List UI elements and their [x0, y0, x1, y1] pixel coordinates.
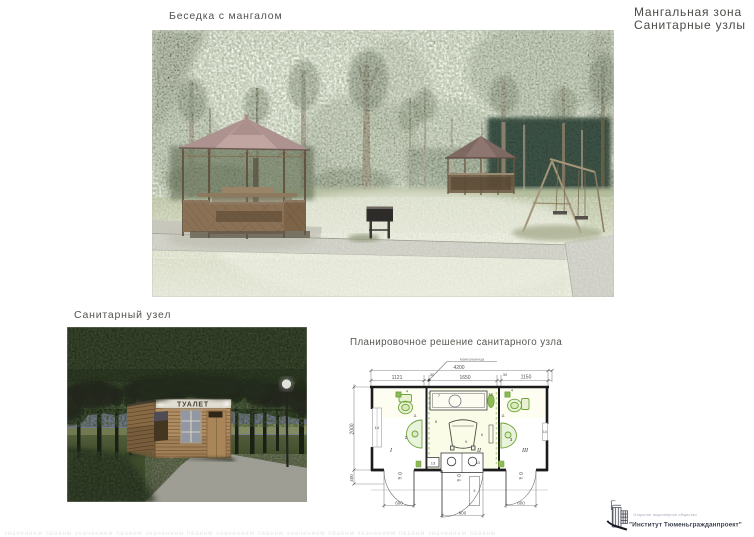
svg-text:III: III: [521, 448, 529, 454]
svg-text:4: 4: [511, 389, 513, 393]
svg-text:"Институт Тюменьгражданпроект": "Институт Тюменьгражданпроект": [629, 522, 742, 529]
svg-text:Д1: Д1: [398, 476, 402, 480]
svg-text:2000: 2000: [349, 423, 355, 434]
svg-text:11: 11: [413, 414, 417, 418]
svg-text:Открытое акционерное общество: Открытое акционерное общество: [634, 513, 697, 517]
svg-text:5: 5: [474, 489, 476, 493]
svg-text:4: 4: [406, 390, 408, 394]
svg-text:800: 800: [459, 511, 467, 516]
svg-text:9: 9: [465, 440, 467, 444]
svg-text:13: 13: [431, 461, 436, 466]
svg-text:13: 13: [476, 461, 480, 465]
svg-text:6: 6: [481, 433, 483, 437]
svg-text:Д1: Д1: [457, 478, 461, 482]
svg-text:11: 11: [501, 414, 505, 418]
svg-text:30: 30: [503, 372, 508, 377]
svg-text:4200: 4200: [453, 365, 464, 371]
svg-text:1150: 1150: [521, 375, 532, 381]
svg-text:600: 600: [517, 501, 525, 506]
svg-text:8: 8: [435, 420, 437, 424]
svg-text:30: 30: [430, 372, 435, 377]
svg-text:Д1: Д1: [519, 476, 523, 480]
svg-text:14: 14: [543, 430, 547, 434]
svg-text:1121: 1121: [392, 375, 403, 381]
svg-text:400: 400: [349, 474, 354, 482]
svg-text:мангальница: мангальница: [460, 357, 485, 362]
svg-text:14: 14: [375, 425, 380, 430]
svg-text:12: 12: [488, 392, 493, 397]
svg-text:1650: 1650: [459, 375, 470, 381]
